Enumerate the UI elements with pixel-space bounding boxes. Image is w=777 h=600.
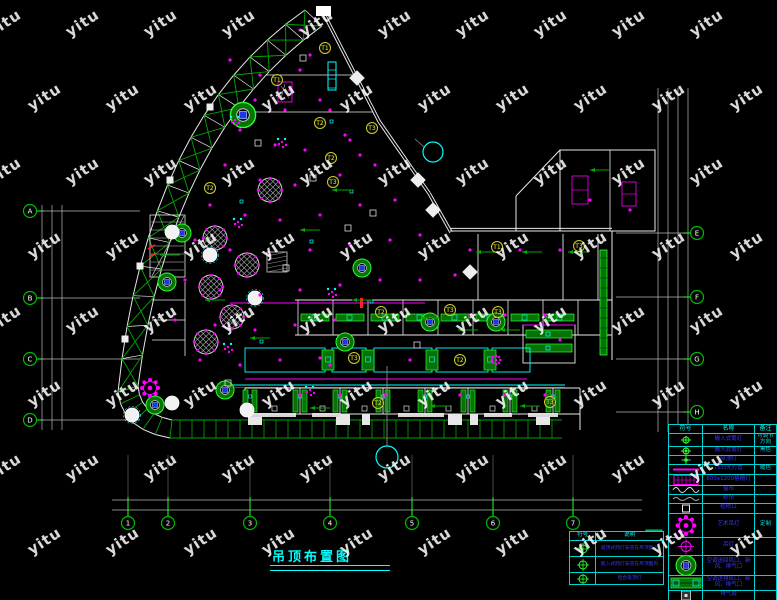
legend-remark xyxy=(755,555,777,575)
svg-text:T3: T3 xyxy=(574,243,583,250)
cad-canvas: T1T2T3T2T3T2T1T3T2T3T3T3T2T2T3T11234567A… xyxy=(0,0,777,600)
terrace-colonnade xyxy=(170,413,562,438)
legend-symbol-cell xyxy=(669,537,703,555)
room-tag: T3 xyxy=(493,307,504,318)
legend-remark xyxy=(755,590,777,600)
legend-symbol-cell xyxy=(669,494,703,503)
title-underline-rule xyxy=(270,565,390,571)
svg-text:T2: T2 xyxy=(376,309,385,316)
axis-bubble: C xyxy=(24,353,37,366)
circle-cross-icon xyxy=(571,574,595,584)
legend-symbol-cell xyxy=(669,455,703,464)
pendant-lamp-icon xyxy=(670,538,702,555)
svg-text:H: H xyxy=(694,409,699,417)
legend-row: 纱帘 xyxy=(669,494,777,503)
grille-light-icon xyxy=(670,475,702,485)
drawing-title: 吊顶布置图 xyxy=(272,546,352,565)
t5-tube-icon xyxy=(670,465,702,474)
axis-bubble: 7 xyxy=(567,517,580,530)
svg-text:T1: T1 xyxy=(320,45,329,52)
floor-plan-drawing: T1T2T3T2T3T2T1T3T2T3T3T3T2T2T3T11234567A… xyxy=(0,0,777,600)
axis-bubble: 2 xyxy=(162,517,175,530)
svg-text:D: D xyxy=(27,417,32,425)
legend-name: T5日光灯管 xyxy=(703,464,755,474)
access-panel-icon xyxy=(670,504,702,513)
room-tag: T2 xyxy=(326,153,337,164)
ac-linear-vent-icon xyxy=(670,576,702,590)
axis-bubble: 4 xyxy=(324,517,337,530)
legend-name: 嵌入式筒灯 xyxy=(703,446,755,455)
note-table: 符号说明吸顶式筒灯安装在吊顶面上嵌入式筒灯安装在吊顶面内组合吸顶灯 xyxy=(569,531,664,585)
room-tag: T1 xyxy=(320,43,331,54)
svg-text:T2: T2 xyxy=(455,357,464,364)
legend-remark xyxy=(755,494,777,503)
legend-name: 吊灯 xyxy=(703,537,755,555)
legend-name: 吸顶灯 xyxy=(703,455,755,464)
legend-row: 窗帘 xyxy=(669,485,777,494)
room-tag: T2 xyxy=(373,398,384,409)
axis-bubble: H xyxy=(691,406,704,419)
svg-text:T1: T1 xyxy=(272,77,281,84)
svg-text:6: 6 xyxy=(491,520,496,528)
note-header-0: 符号 xyxy=(570,532,596,541)
legend-row: 空调送回风口、新风、排气口 xyxy=(669,555,777,575)
svg-text:1: 1 xyxy=(126,520,130,528)
legend-symbol-cell xyxy=(669,513,703,537)
ac-round-vent-icon xyxy=(670,556,702,575)
svg-text:T2: T2 xyxy=(373,400,382,407)
axis-bubble: 1 xyxy=(122,517,135,530)
legend-symbol-cell xyxy=(669,555,703,575)
legend-symbol-cell xyxy=(669,485,703,494)
legend-symbol-cell xyxy=(669,474,703,485)
svg-text:T3: T3 xyxy=(349,355,358,362)
legend-name: 嵌入式筒灯 xyxy=(703,434,755,447)
legend-remark xyxy=(755,537,777,555)
legend-row: 检修口 xyxy=(669,503,777,513)
svg-text:F: F xyxy=(695,294,699,302)
legend-row: 嵌入式筒灯可调节方向 xyxy=(669,434,777,447)
svg-text:E: E xyxy=(695,230,699,238)
legend-remark: 黑色 xyxy=(755,446,777,455)
svg-text:4: 4 xyxy=(328,520,333,528)
sheer-curtain-icon xyxy=(670,495,702,503)
room-tag: T1 xyxy=(272,75,283,86)
legend-remark xyxy=(755,575,777,590)
note-symbol-cell xyxy=(570,541,596,557)
svg-text:T2: T2 xyxy=(315,120,324,127)
svg-text:T3: T3 xyxy=(445,307,454,314)
note-row: 嵌入式筒灯安装在吊顶面内 xyxy=(570,557,664,573)
svg-text:2: 2 xyxy=(166,520,170,528)
svg-text:3: 3 xyxy=(248,520,252,528)
legend-symbol-cell xyxy=(669,503,703,513)
legend-row: 600x1200格栅灯 xyxy=(669,474,777,485)
axis-bubble: G xyxy=(691,353,704,366)
legend-symbol-cell xyxy=(669,590,703,600)
legend-row: 吊灯 xyxy=(669,537,777,555)
room-tag: T2 xyxy=(376,307,387,318)
svg-text:T2: T2 xyxy=(205,185,214,192)
svg-text:T3: T3 xyxy=(493,309,502,316)
legend-name: 排气扇 xyxy=(703,590,755,600)
legend-symbol-cell xyxy=(669,446,703,455)
legend-symbol-cell xyxy=(669,434,703,447)
legend-name: 空调送排风口、新风、排气口 xyxy=(703,575,755,590)
note-header-1: 说明 xyxy=(596,532,664,541)
legend-remark: 定制 xyxy=(755,513,777,537)
legend-header-0: 符号 xyxy=(669,425,703,434)
curtain-icon xyxy=(670,486,702,494)
downlight-adjustable-icon xyxy=(670,436,702,444)
note-symbol-cell xyxy=(570,557,596,573)
legend-symbol-cell xyxy=(669,464,703,474)
ceiling-symbols xyxy=(124,55,506,424)
arc-facade-band xyxy=(118,10,322,438)
downlight-dots xyxy=(173,28,631,396)
room-tag: T3 xyxy=(574,241,585,252)
svg-text:B: B xyxy=(28,295,33,303)
circle-cross-icon xyxy=(571,558,595,572)
axis-bubble: B xyxy=(24,292,37,305)
circle-cross-icon xyxy=(571,542,595,556)
room-tag: T3 xyxy=(367,123,378,134)
legend-remark xyxy=(755,503,777,513)
downlight-icon xyxy=(670,447,702,455)
legend-remark: 可调节方向 xyxy=(755,434,777,447)
svg-text:7: 7 xyxy=(571,520,575,528)
exhaust-fan-icon xyxy=(670,591,702,600)
legend-name: 纱帘 xyxy=(703,494,755,503)
ceiling-lamp-icon xyxy=(670,456,702,464)
svg-text:T2: T2 xyxy=(326,155,335,162)
note-text: 吸顶式筒灯安装在吊顶面上 xyxy=(596,541,664,557)
legend-remark xyxy=(755,455,777,464)
legend-name: 窗帘 xyxy=(703,485,755,494)
room-tag: T1 xyxy=(492,242,503,253)
legend-name: 空调送回风口、新风、排气口 xyxy=(703,555,755,575)
legend-name: 检修口 xyxy=(703,503,755,513)
svg-text:T3: T3 xyxy=(367,125,376,132)
svg-text:T3: T3 xyxy=(328,179,337,186)
art-chandelier-icon xyxy=(670,514,702,537)
svg-text:5: 5 xyxy=(410,520,414,528)
svg-text:T3: T3 xyxy=(545,399,554,406)
room-tag: T2 xyxy=(315,118,326,129)
legend-name: 艺术吊灯 xyxy=(703,513,755,537)
note-row: 吸顶式筒灯安装在吊顶面上 xyxy=(570,541,664,557)
room-tags: T1T2T3T2T3T2T1T3T2T3T3T3T2T2T3T1 xyxy=(205,43,585,409)
room-tag: T2 xyxy=(455,355,466,366)
bottom-rooms xyxy=(243,388,580,430)
room-tag: T3 xyxy=(328,177,339,188)
legend-row: 排气扇 xyxy=(669,590,777,600)
axis-bubble: A xyxy=(24,205,37,218)
legend-symbol-cell xyxy=(669,575,703,590)
note-row: 组合吸顶灯 xyxy=(570,573,664,585)
legend-header-2: 备注 xyxy=(755,425,777,434)
svg-text:A: A xyxy=(28,208,33,216)
legend-remark xyxy=(755,474,777,485)
legend-row: 空调送排风口、新风、排气口 xyxy=(669,575,777,590)
note-text: 嵌入式筒灯安装在吊顶面内 xyxy=(596,557,664,573)
room-tag: T2 xyxy=(205,183,216,194)
svg-text:C: C xyxy=(28,356,33,364)
note-symbol-cell xyxy=(570,573,596,585)
room-tag: T3 xyxy=(349,353,360,364)
legend-name: 600x1200格栅灯 xyxy=(703,474,755,485)
leader-arrows xyxy=(160,168,610,410)
room-tag: T3 xyxy=(545,397,556,408)
legend-remark: 暖色 xyxy=(755,464,777,474)
legend-header-1: 名称 xyxy=(703,425,755,434)
room-tag: T3 xyxy=(445,305,456,316)
axis-bubble: F xyxy=(691,291,704,304)
axis-bubble: 3 xyxy=(244,517,257,530)
axis-bubble: 6 xyxy=(487,517,500,530)
axis-bubble: E xyxy=(691,227,704,240)
legend-row: T5日光灯管暖色 xyxy=(669,464,777,474)
axis-grid xyxy=(37,88,691,516)
legend-remark xyxy=(755,485,777,494)
legend-table: 符号名称备注嵌入式筒灯可调节方向嵌入式筒灯黑色吸顶灯T5日光灯管暖色600x12… xyxy=(668,424,777,600)
note-text: 组合吸顶灯 xyxy=(596,573,664,585)
legend-row: 艺术吊灯定制 xyxy=(669,513,777,537)
legend-row: 嵌入式筒灯黑色 xyxy=(669,446,777,455)
axis-bubble: D xyxy=(24,414,37,427)
svg-text:G: G xyxy=(694,356,699,364)
axis-bubble: 5 xyxy=(406,517,419,530)
svg-text:T1: T1 xyxy=(492,244,501,251)
legend-row: 吸顶灯 xyxy=(669,455,777,464)
